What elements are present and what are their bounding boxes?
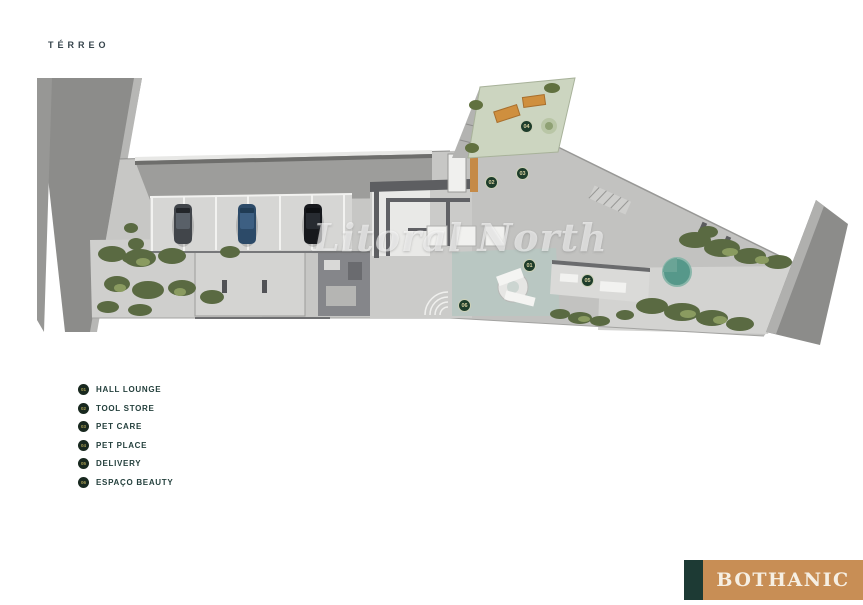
- legend-number-badge: 06: [78, 477, 89, 488]
- legend-item-pet-care: 03 PET CARE: [78, 421, 173, 432]
- legend-item-espaco-beauty: 06 ESPAÇO BEAUTY: [78, 477, 173, 488]
- legend: 01 HALL LOUNGE 02 TOOL STORE 03 PET CARE…: [78, 384, 173, 488]
- floor-plan-illustration: Litoral North 01 02 03 04 05 06: [0, 0, 863, 600]
- car-gray: [172, 204, 194, 247]
- legend-item-label: DELIVERY: [96, 459, 141, 468]
- parking-area: [150, 194, 352, 252]
- legend-item-label: ESPAÇO BEAUTY: [96, 478, 173, 487]
- legend-number-badge: 01: [78, 384, 89, 395]
- brand-logo: BOTHANIC: [703, 560, 863, 600]
- legend-item-label: HALL LOUNGE: [96, 385, 161, 394]
- legend-item-pet-place: 04 PET PLACE: [78, 440, 173, 451]
- legend-item-hall-lounge: 01 HALL LOUNGE: [78, 384, 173, 395]
- legend-item-label: PET PLACE: [96, 441, 147, 450]
- plan-badge-05: 05: [581, 274, 594, 287]
- legend-item-delivery: 05 DELIVERY: [78, 458, 173, 469]
- legend-item-label: PET CARE: [96, 422, 142, 431]
- pool-circle: [663, 258, 691, 286]
- legend-item-label: TOOL STORE: [96, 404, 155, 413]
- plan-badge-06: 06: [458, 299, 471, 312]
- legend-item-tool-store: 02 TOOL STORE: [78, 403, 173, 414]
- pet-place-area: [452, 78, 575, 158]
- page-title: TÉRREO: [48, 40, 110, 50]
- brand-name: BOTHANIC: [716, 569, 849, 591]
- legend-number-badge: 05: [78, 458, 89, 469]
- legend-number-badge: 03: [78, 421, 89, 432]
- plan-badge-01: 01: [523, 259, 536, 272]
- brand-accent-strip: [684, 560, 703, 600]
- car-black: [302, 204, 324, 247]
- plan-badge-03: 03: [516, 167, 529, 180]
- plan-badge-02: 02: [485, 176, 498, 189]
- legend-number-badge: 04: [78, 440, 89, 451]
- plan-badge-04: 04: [520, 120, 533, 133]
- legend-number-badge: 02: [78, 403, 89, 414]
- car-blue: [236, 204, 258, 247]
